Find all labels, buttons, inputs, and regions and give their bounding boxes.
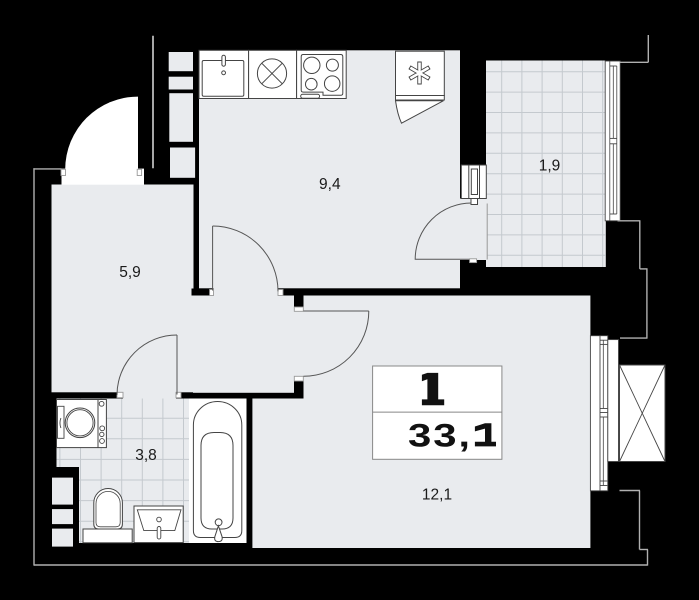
svg-text:3,8: 3,8 — [135, 447, 157, 464]
svg-text:5,9: 5,9 — [119, 264, 141, 281]
svg-text:1,9: 1,9 — [539, 158, 561, 175]
svg-text:9,4: 9,4 — [319, 176, 341, 193]
svg-text:33,: 33, — [408, 417, 472, 453]
svg-text:12,1: 12,1 — [422, 487, 452, 504]
